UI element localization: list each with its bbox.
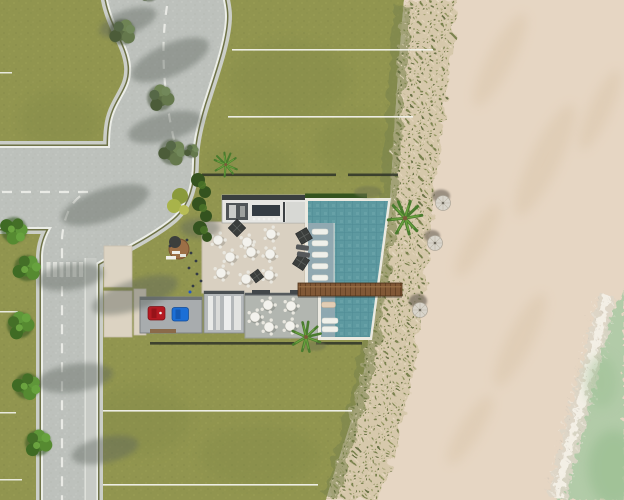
property-line bbox=[97, 410, 352, 412]
property-line bbox=[0, 412, 16, 414]
north-wall bbox=[348, 174, 398, 177]
beach-umbrella bbox=[413, 303, 428, 318]
beach-umbrella bbox=[436, 196, 451, 211]
aerial-site-plan bbox=[0, 0, 624, 500]
red-car bbox=[148, 307, 165, 321]
blue-car bbox=[172, 308, 189, 322]
boardwalk-pier bbox=[298, 283, 402, 298]
property-line bbox=[0, 479, 22, 481]
pool-lounger bbox=[312, 275, 328, 281]
south-wall bbox=[150, 342, 294, 345]
pool-lounger bbox=[312, 264, 328, 270]
property-line bbox=[97, 484, 318, 486]
north-wall bbox=[202, 174, 336, 177]
service-building-roof bbox=[204, 291, 244, 333]
property-line bbox=[228, 116, 413, 118]
bench bbox=[150, 329, 176, 333]
property-line bbox=[232, 49, 433, 51]
restaurant-roof bbox=[222, 195, 307, 223]
pool-lounger bbox=[312, 241, 328, 247]
property-line bbox=[0, 72, 12, 74]
property-line bbox=[0, 311, 18, 313]
pool-lounger bbox=[312, 252, 328, 258]
beach-umbrella bbox=[428, 236, 443, 251]
pool-lounger bbox=[322, 318, 338, 324]
pool-lounger bbox=[322, 302, 336, 308]
pool-lounger bbox=[312, 229, 328, 235]
bench bbox=[166, 256, 176, 260]
pool-lounger bbox=[322, 327, 338, 333]
